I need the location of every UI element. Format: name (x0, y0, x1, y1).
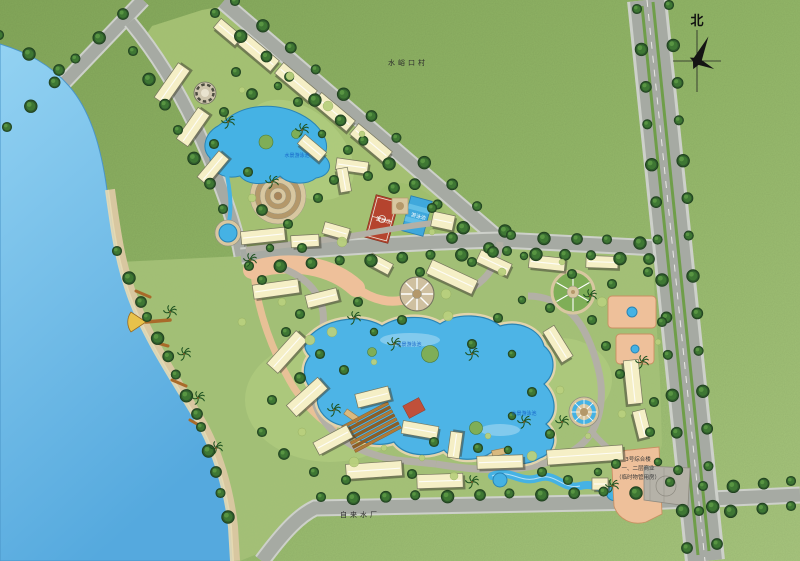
tree-icon (650, 196, 662, 208)
tree-icon (337, 87, 350, 100)
tree-icon (563, 475, 573, 485)
tree-icon (527, 387, 537, 397)
tree-icon (415, 267, 425, 277)
waterpark-pool (493, 473, 507, 487)
tree-icon (643, 253, 655, 265)
shrub-icon (323, 101, 333, 111)
tree-icon (293, 97, 303, 107)
tree-icon (635, 43, 648, 56)
tree-icon (246, 88, 258, 100)
tree-icon (24, 99, 37, 112)
tree-icon (425, 250, 435, 260)
building (477, 455, 526, 472)
tree-icon (691, 308, 703, 320)
tree-icon (187, 152, 200, 165)
tree-icon (397, 315, 407, 325)
tree-icon (601, 341, 611, 351)
lake-island (368, 348, 377, 357)
tree-icon (758, 478, 770, 490)
tree-icon (364, 254, 377, 267)
tree-icon (196, 422, 206, 432)
tree-icon (219, 107, 229, 117)
tree-icon (756, 503, 768, 515)
svg-text:一、二层商业: 一、二层商业 (621, 464, 655, 472)
tree-icon (92, 31, 105, 44)
tree-icon (142, 73, 155, 86)
tree-icon (209, 139, 219, 149)
tree-icon (151, 331, 164, 344)
tree-icon (341, 475, 351, 485)
tree-icon (122, 271, 135, 284)
tree-icon (649, 397, 659, 407)
tree-icon (285, 42, 297, 54)
tree-icon (587, 315, 597, 325)
tree-icon (467, 339, 477, 349)
tree-icon (613, 252, 626, 265)
tree-icon (283, 219, 293, 229)
tree-icon (396, 252, 408, 264)
tree-icon (128, 46, 138, 56)
tree-icon (665, 477, 675, 487)
tree-icon (297, 243, 307, 253)
shrub-icon (349, 457, 359, 467)
shrub-icon (278, 298, 286, 306)
tree-icon (353, 297, 363, 307)
tree-icon (529, 248, 542, 261)
tree-icon (446, 179, 458, 191)
tree-icon (315, 349, 325, 359)
tree-icon (343, 145, 353, 155)
tree-icon (568, 487, 580, 499)
tree-icon (22, 47, 35, 60)
tree-icon (696, 385, 709, 398)
tree-icon (643, 267, 653, 277)
shrub-icon (655, 339, 661, 345)
tree-icon (347, 492, 360, 505)
tree-icon (611, 459, 621, 469)
shrub-icon (305, 335, 315, 345)
water-plant-label: 自来水厂 (340, 510, 380, 519)
tree-icon (335, 255, 345, 265)
tree-icon (467, 257, 477, 267)
lake-island (422, 346, 439, 363)
tree-icon (409, 178, 421, 190)
tree-icon (243, 167, 253, 177)
tree-icon (306, 257, 318, 269)
tree-icon (698, 481, 708, 491)
sun-plaza (400, 277, 434, 311)
tree-icon (520, 252, 528, 260)
southeast-water-label: 水景游泳池 (511, 410, 536, 417)
fountain-plaza (569, 397, 599, 427)
tree-icon (724, 505, 737, 518)
tree-icon (457, 221, 470, 234)
tree-icon (474, 489, 486, 501)
shrub-icon (618, 410, 626, 418)
pool-island (259, 135, 273, 149)
tree-icon (366, 110, 378, 122)
tree-icon (645, 427, 655, 437)
tree-icon (49, 77, 61, 89)
tree-icon (234, 30, 247, 43)
tree-icon (281, 327, 291, 337)
tree-icon (274, 259, 287, 272)
tree-icon (117, 8, 129, 20)
shrub-icon (298, 428, 306, 436)
tree-icon (294, 372, 306, 384)
tree-icon (363, 171, 373, 181)
shrub-icon (597, 297, 607, 307)
tree-icon (329, 175, 339, 185)
tree-icon (664, 0, 674, 10)
tree-icon (673, 465, 683, 475)
tree-icon (504, 488, 514, 498)
tree-icon (493, 313, 503, 323)
svg-text:（临时物管用房）: （临时物管用房） (616, 473, 660, 481)
tree-icon (318, 130, 326, 138)
tree-icon (309, 467, 319, 477)
tree-icon (218, 204, 228, 214)
shrub-icon (371, 359, 377, 365)
tree-icon (502, 246, 512, 256)
tree-icon (267, 395, 277, 405)
tree-icon (711, 538, 723, 550)
tree-icon (706, 500, 719, 513)
shrub-icon (527, 451, 537, 461)
tree-icon (640, 81, 652, 93)
tree-icon (667, 39, 680, 52)
tree-icon (703, 461, 713, 471)
shrub-icon (239, 87, 245, 93)
tree-icon (567, 269, 577, 279)
tree-icon (681, 542, 693, 554)
tree-icon (441, 490, 454, 503)
tree-icon (278, 448, 290, 460)
tree-icon (221, 510, 234, 523)
tree-icon (295, 309, 305, 319)
tree-icon (410, 490, 420, 500)
tree-icon (487, 246, 499, 258)
central-lake-label: 水景游泳池 (396, 341, 421, 348)
tree-icon (261, 51, 273, 63)
tree-icon (615, 369, 625, 379)
tree-icon (653, 235, 663, 245)
tree-icon (274, 82, 282, 90)
tree-icon (308, 93, 321, 106)
ring-fountain (194, 82, 216, 104)
shrub-icon (443, 311, 453, 321)
tree-icon (2, 122, 12, 132)
tree-icon (632, 4, 642, 14)
tree-icon (535, 488, 548, 501)
shrub-icon (286, 72, 294, 80)
tree-icon (602, 234, 612, 244)
tree-icon (786, 501, 796, 511)
tree-icon (599, 487, 609, 497)
tree-icon (694, 346, 704, 356)
tree-icon (210, 8, 220, 18)
tree-icon (257, 427, 267, 437)
shrub-icon (248, 194, 256, 202)
tree-icon (682, 192, 694, 204)
tree-icon (545, 303, 555, 313)
shrub-icon (327, 327, 337, 337)
tree-icon (257, 275, 267, 285)
tree-icon (418, 156, 431, 169)
tree-icon (202, 444, 215, 457)
tree-icon (380, 491, 392, 503)
tree-icon (391, 133, 401, 143)
tree-icon (382, 157, 395, 170)
tree-icon (244, 261, 254, 271)
tree-icon (427, 203, 437, 213)
tree-icon (545, 429, 555, 439)
tree-icon (313, 193, 323, 203)
shrub-icon (429, 229, 435, 235)
tree-icon (672, 77, 684, 89)
tree-icon (508, 350, 516, 358)
tree-icon (455, 248, 468, 261)
shrub-icon (450, 472, 458, 480)
tree-icon (142, 312, 152, 322)
tree-icon (370, 328, 378, 336)
tree-icon (335, 114, 347, 126)
tree-icon (676, 154, 689, 167)
shrub-icon (238, 318, 246, 326)
tree-icon (135, 296, 147, 308)
shrub-icon (337, 237, 347, 247)
tree-icon (684, 231, 694, 241)
tree-icon (215, 488, 225, 498)
tree-icon (694, 506, 704, 516)
shrub-icon (556, 386, 564, 394)
tree-icon (571, 233, 583, 245)
village-label: 水峪口村 (388, 58, 428, 67)
shrub-icon (381, 445, 387, 451)
tree-icon (676, 504, 689, 517)
tree-icon (53, 64, 65, 76)
north-label: 北 (690, 14, 703, 29)
tree-icon (663, 350, 673, 360)
shrub-icon (419, 455, 425, 461)
tree-icon (654, 458, 662, 466)
upper-water-label: 水景游泳池 (284, 152, 309, 159)
tree-icon (204, 178, 216, 190)
master-plan-svg: 水峪口村 自来水厂 篮球场 游泳池 水景游泳池 水景游泳池 水景游泳池 3号综合… (0, 0, 800, 561)
tree-icon (173, 125, 183, 135)
tree-icon (655, 273, 668, 286)
tree-icon (311, 64, 321, 74)
tree-icon (537, 232, 550, 245)
tree-icon (191, 408, 203, 420)
tree-icon (266, 244, 274, 252)
shrub-icon (559, 259, 565, 265)
tree-icon (629, 486, 642, 499)
tree-icon (256, 19, 269, 32)
tree-icon (559, 249, 571, 261)
svg-text:3号综合楼: 3号综合楼 (625, 455, 651, 463)
tree-icon (786, 476, 796, 486)
tree-icon (645, 158, 658, 171)
tree-icon (388, 182, 400, 194)
tree-icon (701, 423, 713, 435)
shrub-icon (498, 268, 506, 276)
tree-icon (586, 250, 596, 260)
round-pool (215, 220, 241, 246)
tree-icon (657, 317, 667, 327)
shrub-icon (585, 433, 591, 439)
tree-icon (518, 296, 526, 304)
tree-icon (316, 492, 326, 502)
tree-icon (594, 468, 602, 476)
tree-icon (727, 480, 740, 493)
tree-icon (231, 67, 241, 77)
tree-icon (429, 437, 439, 447)
tree-icon (642, 119, 652, 129)
tree-icon (674, 115, 684, 125)
shrub-icon (485, 433, 491, 439)
tree-icon (473, 443, 483, 453)
shrub-icon (359, 131, 365, 137)
tree-icon (112, 246, 122, 256)
tree-icon (446, 232, 458, 244)
tree-icon (671, 427, 683, 439)
lake-island (470, 422, 483, 435)
tree-icon (339, 365, 349, 375)
tree-icon (633, 236, 646, 249)
tree-icon (506, 230, 516, 240)
tree-icon (162, 351, 174, 363)
tree-icon (472, 201, 482, 211)
tree-icon (358, 136, 368, 146)
tree-icon (180, 389, 193, 402)
tree-icon (686, 269, 699, 282)
tree-icon (256, 204, 268, 216)
tree-icon (666, 389, 679, 402)
tree-icon (607, 279, 617, 289)
tree-icon (171, 370, 181, 380)
shrub-icon (441, 289, 451, 299)
tree-icon (70, 54, 80, 64)
tree-icon (407, 469, 417, 479)
tree-icon (537, 467, 547, 477)
tree-icon (210, 466, 222, 478)
tree-icon (504, 446, 512, 454)
small-plaza (392, 198, 408, 214)
site-plan-canvas: 水峪口村 自来水厂 篮球场 游泳池 水景游泳池 水景游泳池 水景游泳池 3号综合… (0, 0, 800, 561)
tree-icon (159, 99, 171, 111)
